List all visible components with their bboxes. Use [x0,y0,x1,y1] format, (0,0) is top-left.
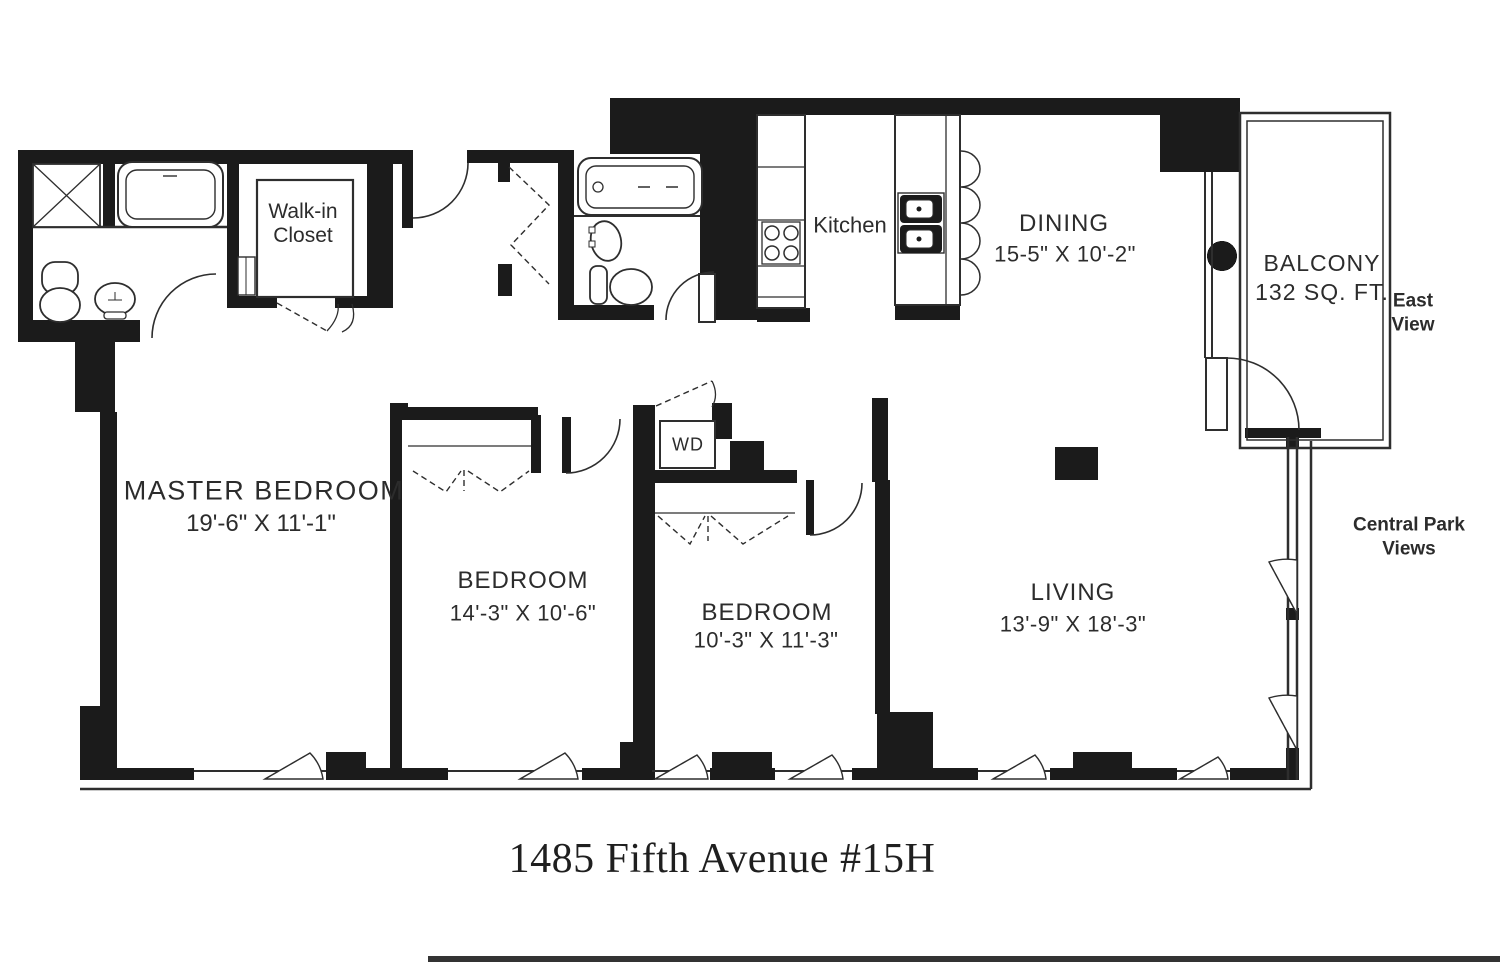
floor-plan-page: Walk-in Closet Kitchen DINING 15-5" X 10… [0,0,1500,962]
stove-burners [762,222,800,264]
kitchen-label: Kitchen [813,212,886,237]
structural-column-square [1055,447,1098,480]
balcony-area: 132 SQ. FT. [1255,279,1389,305]
master-bathroom-fixtures [33,162,227,322]
kitchen-cabinets-left [757,115,805,308]
wd-door-leaf [656,381,712,406]
central-park-views-note: Central Park Views [1353,513,1465,561]
kitchen-sink [898,193,944,253]
bedroom3-door-swing [810,483,862,535]
walkin-closet-bifold [277,303,327,331]
window-swing-fans [265,559,1297,779]
bedroom2-dims: 14'-3" X 10'-6" [450,600,596,625]
master-bedroom-label: MASTER BEDROOM [124,475,405,506]
counter-seating-scallops [961,151,980,295]
bedroom2-door-swing [566,419,620,473]
windows [194,559,1297,779]
wd-label: WD [672,435,704,456]
living-label: LIVING [1031,579,1116,607]
dining-dims: 15-5" X 10'-2" [994,241,1136,266]
master-bedroom-dims: 19'-6" X 11'-1" [186,510,336,538]
shower-stall [33,164,100,227]
bathroom-sink [95,283,135,319]
balcony-door-swing [1227,358,1299,430]
walkin-closet-label: Walk-in Closet [268,200,337,248]
dining-label: DINING [1019,210,1109,238]
bathtub [118,162,223,227]
bottom-edge-artifact [428,956,1500,962]
foyer-closet-bifold [509,167,549,284]
bathroom2-sink [587,218,625,263]
toilet [40,262,80,322]
walkin-shelf [238,257,255,295]
bedroom3-label: BEDROOM [701,599,832,627]
bathtub-2 [578,158,702,215]
toilet-2 [590,266,652,305]
bedroom2-label: BEDROOM [457,567,588,595]
entry-door-swing [413,163,468,218]
window-swing-leaves [265,562,1297,779]
plan-title: 1485 Fifth Avenue #15H [509,835,936,883]
bath2-door-leaf [699,274,715,322]
master-bath-door-swing [152,274,216,338]
bedroom3-dims: 10'-3" X 11'-3" [694,627,839,652]
living-dims: 13'-9" X 18'-3" [1000,611,1146,636]
bedroom2-closet-bifold [413,470,529,492]
balcony-door-leaf [1206,358,1227,430]
balcony-label: BALCONY [1264,250,1381,276]
east-view-note: East View [1392,289,1435,337]
bedroom3-closet-bifold [658,516,788,544]
